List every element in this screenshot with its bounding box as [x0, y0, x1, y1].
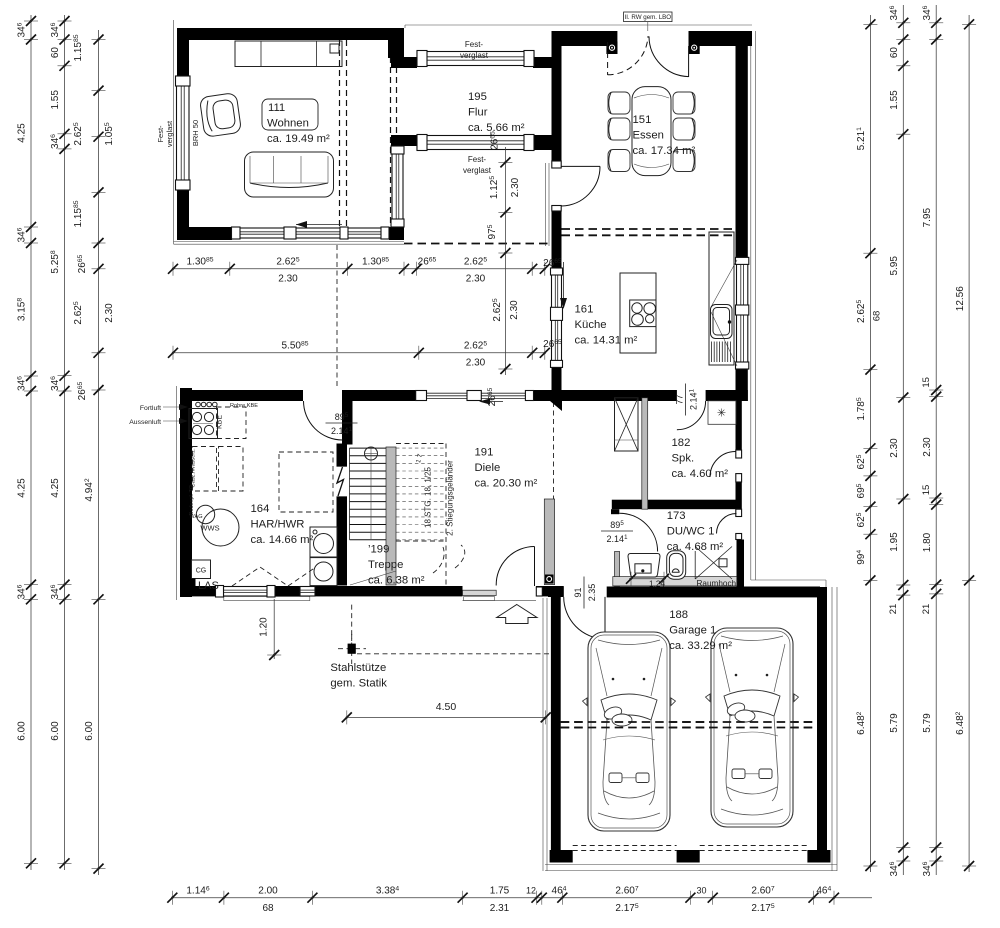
svg-text:DU/WC 1: DU/WC 1: [667, 526, 715, 538]
svg-text:12: 12: [526, 886, 536, 896]
svg-text:Gasz./Wasserz.: Gasz./Wasserz.: [191, 448, 197, 488]
svg-text:ca. 4.68 m²: ca. 4.68 m²: [667, 541, 724, 553]
svg-text:164: 164: [251, 503, 270, 515]
svg-text:1.80: 1.80: [922, 532, 933, 552]
svg-text:77: 77: [675, 394, 685, 404]
svg-text:2.30: 2.30: [104, 303, 115, 323]
svg-text:68: 68: [262, 903, 274, 914]
svg-text:verglast: verglast: [463, 166, 492, 175]
svg-text:1.95: 1.95: [889, 532, 900, 552]
svg-text:2.35: 2.35: [587, 584, 597, 602]
svg-text:2.30: 2.30: [278, 274, 298, 285]
svg-text:1.75: 1.75: [490, 886, 510, 897]
svg-text:WWS: WWS: [200, 524, 219, 533]
svg-text:ca. 14.31 m²: ca. 14.31 m²: [575, 335, 638, 347]
svg-text:2.30: 2.30: [510, 177, 521, 197]
svg-text:Essen: Essen: [633, 130, 664, 142]
svg-text:Bodenpl. TG: Bodenpl. TG: [189, 485, 195, 515]
svg-text:HAR/HWR: HAR/HWR: [251, 519, 305, 531]
svg-text:7.95: 7.95: [922, 208, 933, 228]
svg-text:Raumhoch’: Raumhoch’: [697, 579, 739, 588]
svg-text:6.00: 6.00: [17, 721, 28, 741]
svg-text:Stahlstütze: Stahlstütze: [330, 662, 386, 674]
svg-text:verglast: verglast: [165, 120, 174, 147]
svg-text:60: 60: [50, 47, 61, 59]
svg-text:✳: ✳: [717, 408, 726, 420]
svg-text:Treppe: Treppe: [368, 559, 403, 571]
svg-text:Fest-: Fest-: [468, 155, 487, 164]
svg-text:191: 191: [475, 447, 494, 459]
svg-text:4.25: 4.25: [17, 123, 28, 143]
svg-text:ca. 5.66 m²: ca. 5.66 m²: [468, 122, 525, 134]
svg-text:ca. 33.29 m²: ca. 33.29 m²: [669, 640, 732, 652]
svg-text:’199: ’199: [368, 544, 389, 556]
svg-text:BRH 50: BRH 50: [191, 120, 200, 146]
svg-text:15: 15: [921, 377, 932, 388]
svg-text:4.25: 4.25: [50, 478, 61, 498]
svg-text:161: 161: [575, 304, 594, 316]
svg-text:Flur: Flur: [468, 107, 488, 119]
svg-text:ca. 4.60 m²: ca. 4.60 m²: [672, 468, 729, 480]
svg-text:2.30: 2.30: [922, 437, 933, 457]
svg-text:Diele: Diele: [475, 462, 501, 474]
svg-text:1.55: 1.55: [50, 90, 61, 110]
svg-text:KBE: KBE: [217, 415, 224, 429]
svg-text:188: 188: [669, 609, 688, 621]
svg-text:60: 60: [889, 47, 900, 59]
svg-text:21: 21: [921, 604, 932, 615]
svg-text:2.30: 2.30: [889, 438, 900, 458]
svg-text:151: 151: [633, 114, 652, 126]
svg-text:2.30: 2.30: [509, 300, 520, 320]
svg-text:ca. 19.49 m²: ca. 19.49 m²: [267, 133, 330, 145]
svg-text:1.20: 1.20: [259, 617, 270, 637]
svg-text:Küche: Küche: [575, 319, 607, 331]
svg-text:Fortluft: Fortluft: [140, 405, 161, 412]
svg-text:6.00: 6.00: [84, 721, 95, 741]
svg-text:ca. 14.66 m²: ca. 14.66 m²: [251, 534, 314, 546]
svg-text:111: 111: [268, 102, 285, 114]
svg-text:Rohre KBE: Rohre KBE: [230, 403, 258, 409]
svg-text:1.24: 1.24: [649, 580, 665, 589]
svg-text:15: 15: [921, 485, 932, 496]
svg-text:182: 182: [672, 437, 691, 449]
svg-text:2. Stiegungsgeländer: 2. Stiegungsgeländer: [446, 460, 455, 536]
svg-text:5.79: 5.79: [922, 713, 933, 733]
svg-text:68: 68: [872, 311, 883, 322]
svg-text:1.55: 1.55: [889, 90, 900, 110]
svg-text:5.79: 5.79: [889, 713, 900, 733]
svg-text:195: 195: [468, 91, 487, 103]
svg-text:Aussenluft: Aussenluft: [129, 419, 161, 426]
svg-text:5.95: 5.95: [889, 256, 900, 276]
svg-text:LAS: LAS: [198, 580, 219, 592]
svg-text:21: 21: [888, 604, 899, 615]
svg-text:2.31: 2.31: [490, 903, 510, 914]
svg-text:4.25: 4.25: [17, 478, 28, 498]
svg-text:Spk.: Spk.: [672, 453, 695, 465]
svg-text:ca. 6.38 m²: ca. 6.38 m²: [368, 575, 425, 587]
svg-text:Wohnen: Wohnen: [267, 118, 309, 130]
svg-text:2.00: 2.00: [258, 886, 278, 897]
svg-text:18 STG. 18, 1/25: 18 STG. 18, 1/25: [424, 466, 433, 527]
svg-text:6.00: 6.00: [50, 721, 61, 741]
svg-text:Garage 1: Garage 1: [669, 625, 716, 637]
svg-text:91: 91: [573, 587, 583, 597]
svg-text:gem. Statik: gem. Statik: [330, 678, 387, 690]
svg-text:2.30: 2.30: [466, 274, 486, 285]
svg-text:ca. 17.34 m²: ca. 17.34 m²: [633, 145, 696, 157]
svg-text:4.50: 4.50: [436, 701, 457, 713]
svg-text:2.30: 2.30: [466, 358, 486, 369]
svg-text:12.56: 12.56: [955, 286, 966, 311]
svg-text:Fest-: Fest-: [156, 125, 165, 143]
svg-text:173: 173: [667, 510, 686, 522]
svg-text:verglast: verglast: [460, 51, 489, 60]
svg-text:30: 30: [696, 886, 706, 896]
svg-text:CG: CG: [196, 568, 207, 575]
svg-text:ca. 20.30 m²: ca. 20.30 m²: [475, 478, 538, 490]
svg-text:Fest-: Fest-: [465, 40, 484, 49]
svg-text:II. RW gem. LBO: II. RW gem. LBO: [624, 14, 671, 21]
